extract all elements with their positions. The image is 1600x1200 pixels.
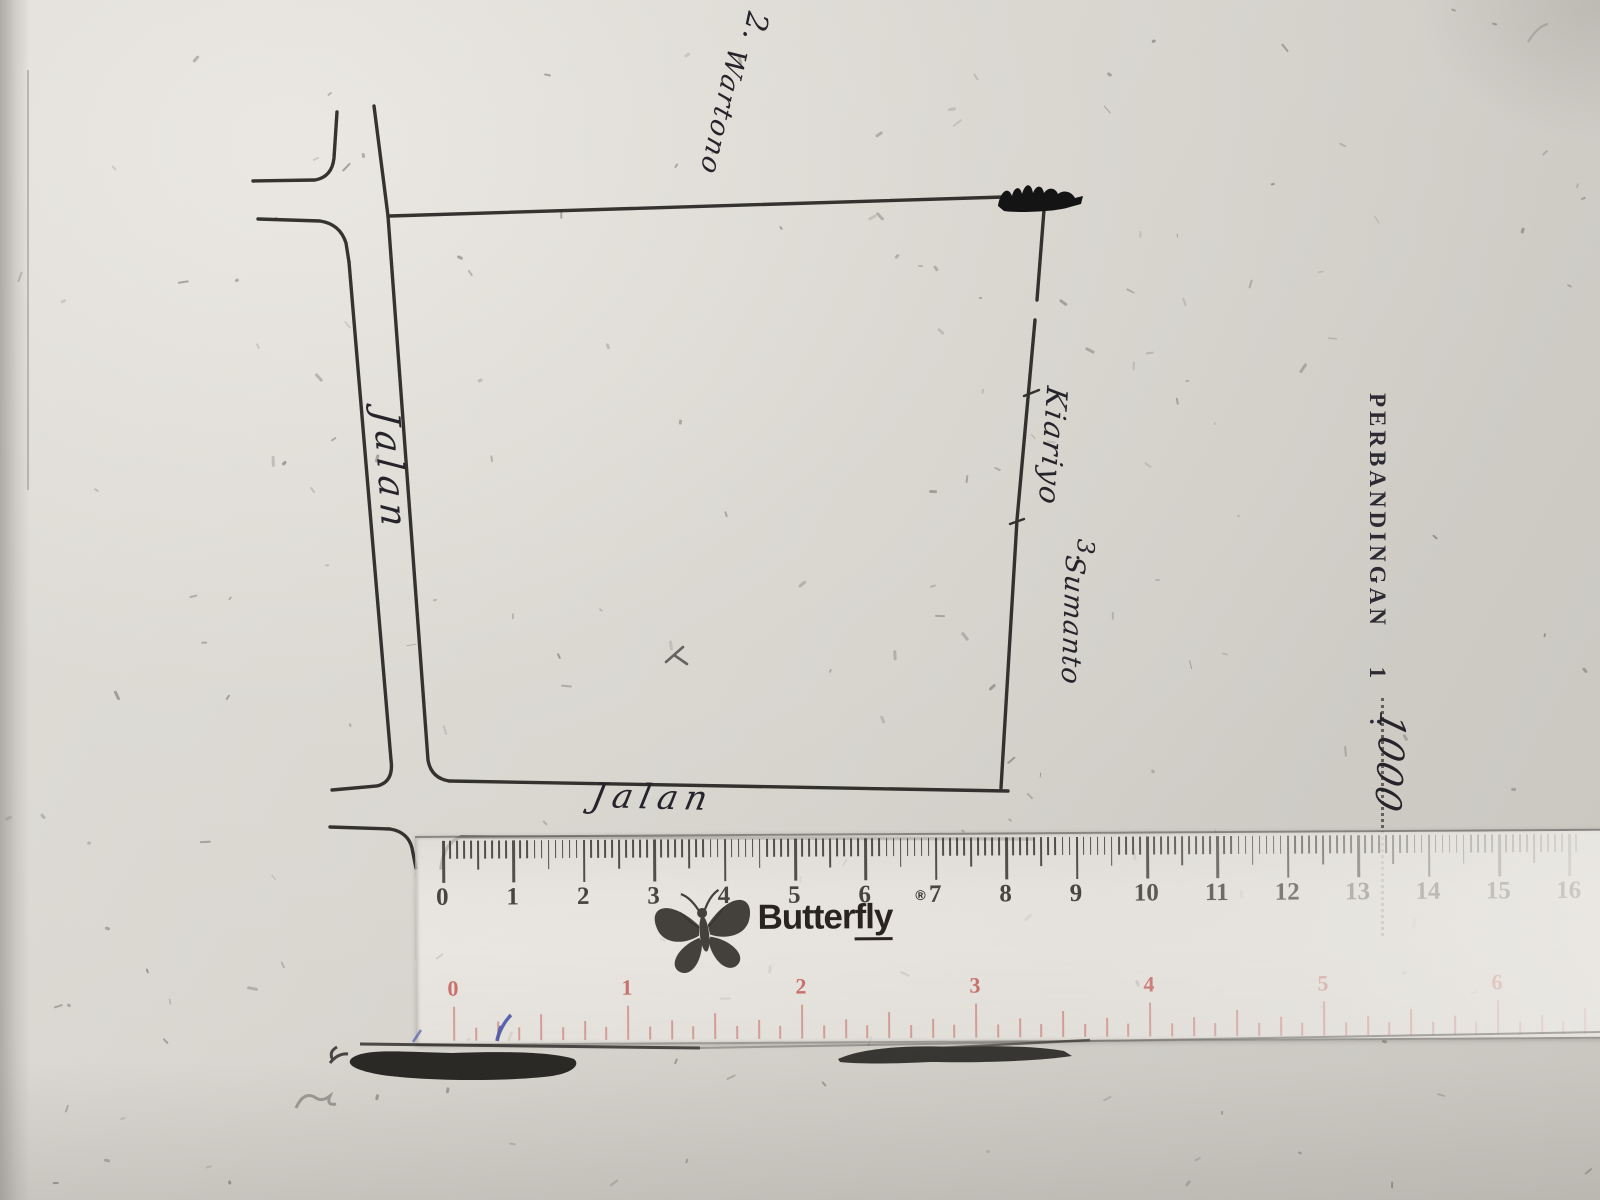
ruler-bottom-edge-light bbox=[700, 1032, 1600, 1048]
blue-pen-dash bbox=[413, 1030, 421, 1042]
ink-smudge-left bbox=[350, 1051, 577, 1080]
ruler-bottom-edge-dark bbox=[360, 1044, 700, 1048]
ink-smudge-right bbox=[838, 1046, 1072, 1063]
ink-smudge-left-tail bbox=[330, 1047, 348, 1063]
photographed-land-sketch: Jalan Jalan 2. Wartono Kiariyo 3. Sumant… bbox=[0, 0, 1600, 1200]
ink-smudge-overlay bbox=[0, 0, 1600, 1200]
faint-corner-mark bbox=[1528, 24, 1548, 42]
blue-pen-mark bbox=[497, 1015, 511, 1041]
pencil-scribble bbox=[296, 1096, 336, 1108]
